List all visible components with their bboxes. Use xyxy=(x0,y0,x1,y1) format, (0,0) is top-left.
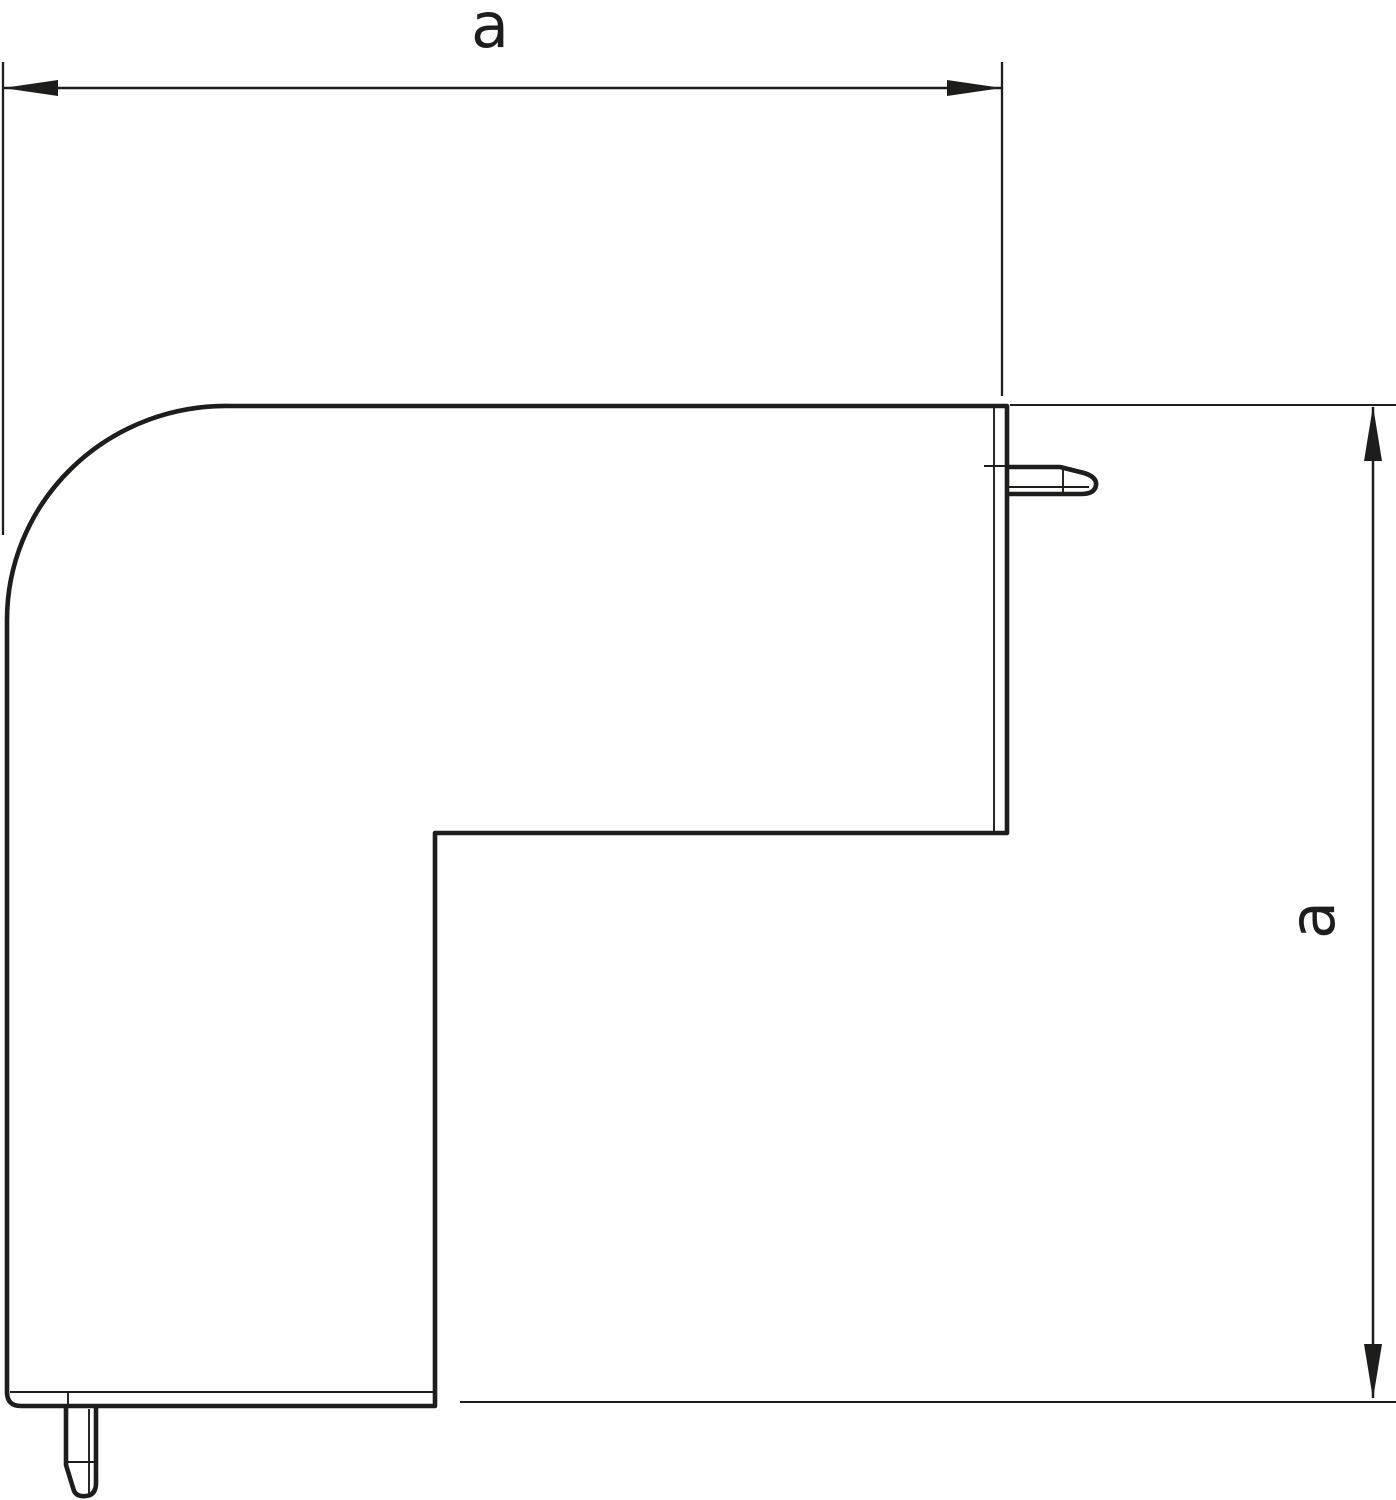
arrow-up-icon xyxy=(1364,406,1382,461)
tab-contour-bottom xyxy=(66,1408,96,1496)
width-dimension-label: a xyxy=(471,0,509,62)
arrow-right-icon xyxy=(947,80,1002,96)
drawing-canvas: a a xyxy=(0,0,1396,1500)
tab-contour-top xyxy=(1008,467,1096,494)
width-dimension: a xyxy=(3,0,1002,535)
corner-cover-technical-drawing: a a xyxy=(0,0,1396,1500)
height-dimension-label: a xyxy=(1276,901,1349,939)
arrow-left-icon xyxy=(3,80,58,96)
height-dimension: a xyxy=(460,405,1396,1402)
cover-body xyxy=(7,406,1007,1406)
latch-tab-top-right xyxy=(984,466,1096,494)
arrow-down-icon xyxy=(1364,1344,1382,1399)
cover-outer-contour xyxy=(7,406,1007,1406)
